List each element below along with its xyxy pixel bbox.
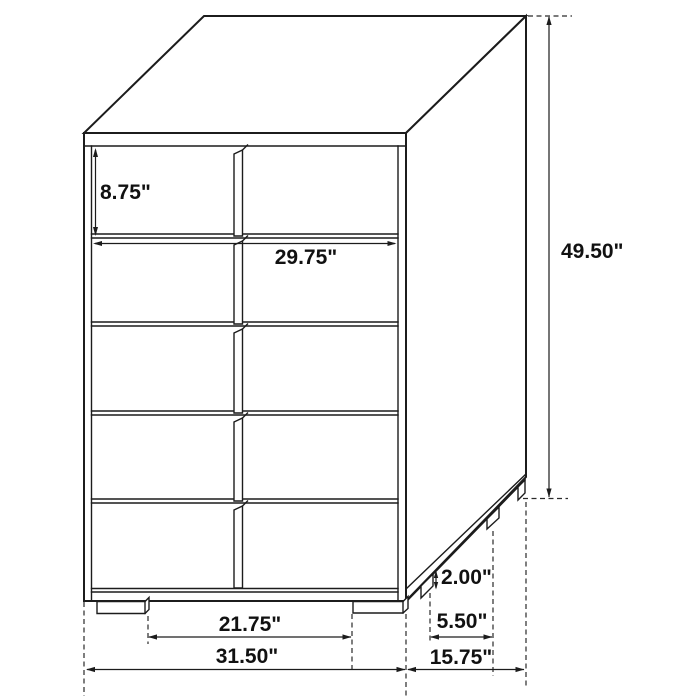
chest-dimension-diagram: 8.75" 29.75" 49.50" 2.00" 5.	[0, 0, 700, 700]
drawer-height-label: 8.75"	[100, 181, 151, 204]
front-foot-spacing-label: 21.75"	[219, 613, 282, 636]
dim-foot-height: 2.00"	[434, 566, 492, 590]
dim-overall-height: 49.50"	[546, 16, 623, 498]
drawer-width-label: 29.75"	[275, 246, 338, 269]
dim-front-foot-spacing: 21.75"	[148, 613, 352, 640]
overall-height-label: 49.50"	[561, 240, 624, 263]
dim-overall-width: 31.50"	[86, 645, 406, 672]
dim-side-foot-spacing: 5.50"	[430, 610, 493, 640]
dim-overall-depth: 15.75"	[407, 646, 525, 672]
foot-height-label: 2.00"	[441, 566, 492, 589]
chest-body	[84, 16, 526, 614]
diagram-canvas: 8.75" 29.75" 49.50" 2.00" 5.	[0, 0, 700, 700]
side-foot-spacing-label: 5.50"	[437, 610, 488, 633]
overall-width-label: 31.50"	[216, 645, 279, 668]
overall-depth-label: 15.75"	[430, 646, 493, 669]
